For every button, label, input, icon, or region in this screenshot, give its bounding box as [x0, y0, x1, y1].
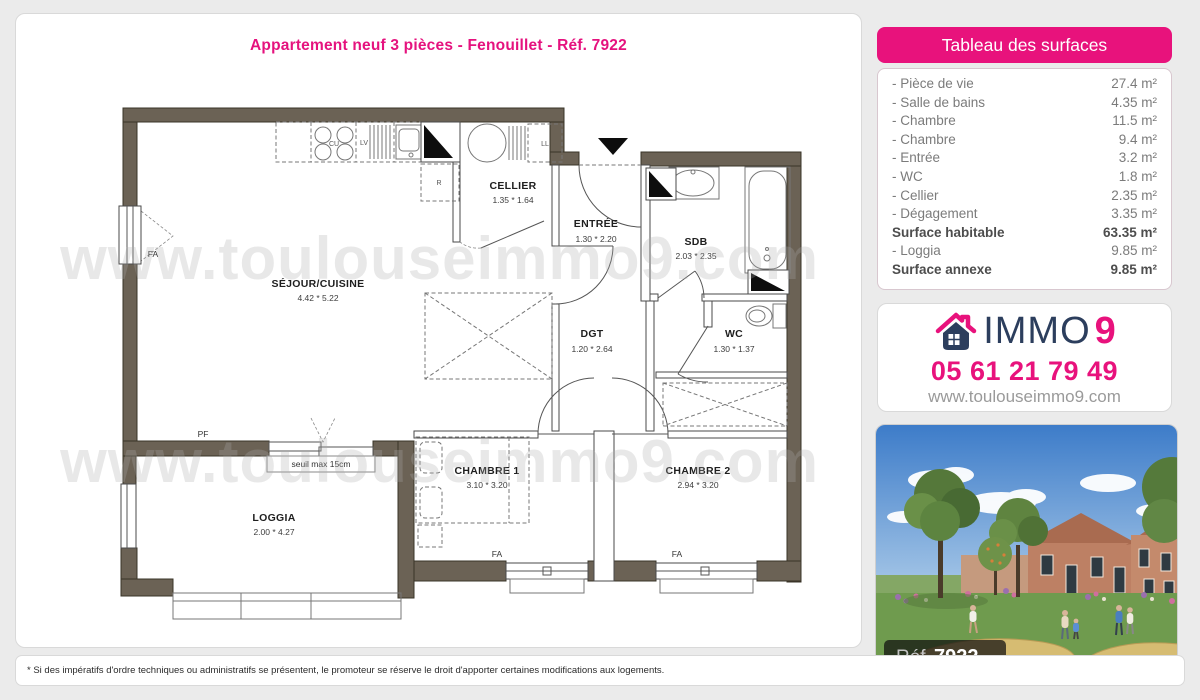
room-label-entree: ENTRÉE [574, 217, 618, 230]
room-dims-wc: 1.30 * 1.37 [713, 344, 754, 354]
surfaces-table: - Pièce de vie27.4 m² - Salle de bains4.… [877, 68, 1172, 290]
table-row: - WC1.8 m² [878, 168, 1171, 187]
room-dims-chambre2: 2.94 * 3.20 [677, 480, 718, 490]
room-labels: SÉJOUR/CUISINE 4.42 * 5.22 CELLIER 1.35 … [252, 180, 754, 537]
photo-illustration: Réf. 7922 [876, 425, 1178, 676]
room-label-cellier: CELLIER [489, 180, 536, 192]
brand-9: 9 [1095, 310, 1116, 353]
room-label-dgt: DGT [580, 328, 603, 340]
seuil-label: seuil max 15cm [291, 459, 350, 469]
footnote-bar: * Si des impératifs d'ordre techniques o… [15, 655, 1185, 686]
doors [141, 165, 708, 442]
entrance-arrow-icon [598, 138, 628, 155]
window-label-fa-ch2: FA [672, 549, 683, 559]
room-dims-dgt: 1.20 * 2.64 [571, 344, 612, 354]
table-row: - Salle de bains4.35 m² [878, 94, 1171, 113]
kitchen-counter [276, 122, 460, 201]
table-row-total-habitable: Surface habitable63.35 m² [878, 224, 1171, 243]
hob-label-cu: CU [329, 141, 339, 148]
room-label-chambre1: CHAMBRE 1 [454, 465, 519, 477]
footnote-text: * Si des impératifs d'ordre techniques o… [16, 665, 664, 676]
floorplan-drawing: SÉJOUR/CUISINE 4.42 * 5.22 CELLIER 1.35 … [16, 14, 862, 648]
table-row: - Pièce de vie27.4 m² [878, 75, 1171, 94]
table-row-total-annexe: Surface annexe9.85 m² [878, 261, 1171, 280]
agency-phone: 05 61 21 79 49 [931, 356, 1118, 386]
house-logo-icon [933, 310, 979, 354]
agency-logo: IMMO9 [933, 309, 1116, 355]
room-label-sdb: SDB [684, 236, 707, 248]
floorplan-panel: Appartement neuf 3 pièces - Fenouillet -… [15, 13, 862, 648]
agency-card: IMMO9 05 61 21 79 49 www.toulouseimmo9.c… [877, 303, 1172, 412]
room-dims-cellier: 1.35 * 1.64 [492, 195, 533, 205]
table-row: - Chambre11.5 m² [878, 112, 1171, 131]
room-label-loggia: LOGGIA [252, 512, 295, 524]
table-row: - Loggia9.85 m² [878, 242, 1171, 261]
room-dims-sdb: 2.03 * 2.35 [675, 251, 716, 261]
window-label-fa-left: FA [148, 249, 159, 259]
table-row: - Chambre9.4 m² [878, 131, 1171, 150]
room-label-wc: WC [725, 328, 743, 340]
windows [119, 206, 757, 619]
brand-immo: IMMO [983, 310, 1090, 353]
room-label-chambre2: CHAMBRE 2 [665, 465, 730, 477]
window-label-fa-ch1: FA [492, 549, 503, 559]
property-photo: Réf. 7922 [875, 424, 1178, 676]
washer-label-ll: LL [541, 141, 549, 148]
dishwasher-label-lv: LV [360, 140, 368, 147]
room-label-sejour: SÉJOUR/CUISINE [272, 277, 365, 290]
agency-website: www.toulouseimmo9.com [928, 387, 1121, 407]
fridge-label-r: R [436, 180, 441, 187]
room-dims-entree: 1.30 * 2.20 [575, 234, 616, 244]
surfaces-table-header: Tableau des surfaces [877, 27, 1172, 63]
table-row: - Cellier2.35 m² [878, 187, 1171, 206]
exterior-walls [121, 108, 801, 598]
table-row: - Dégagement3.35 m² [878, 205, 1171, 224]
table-row: - Entrée3.2 m² [878, 149, 1171, 168]
room-dims-sejour: 4.42 * 5.22 [297, 293, 338, 303]
door-label-pf: PF [198, 429, 209, 439]
room-dims-chambre1: 3.10 * 3.20 [466, 480, 507, 490]
room-dims-loggia: 2.00 * 4.27 [253, 527, 294, 537]
bathroom-fixtures [646, 167, 790, 328]
